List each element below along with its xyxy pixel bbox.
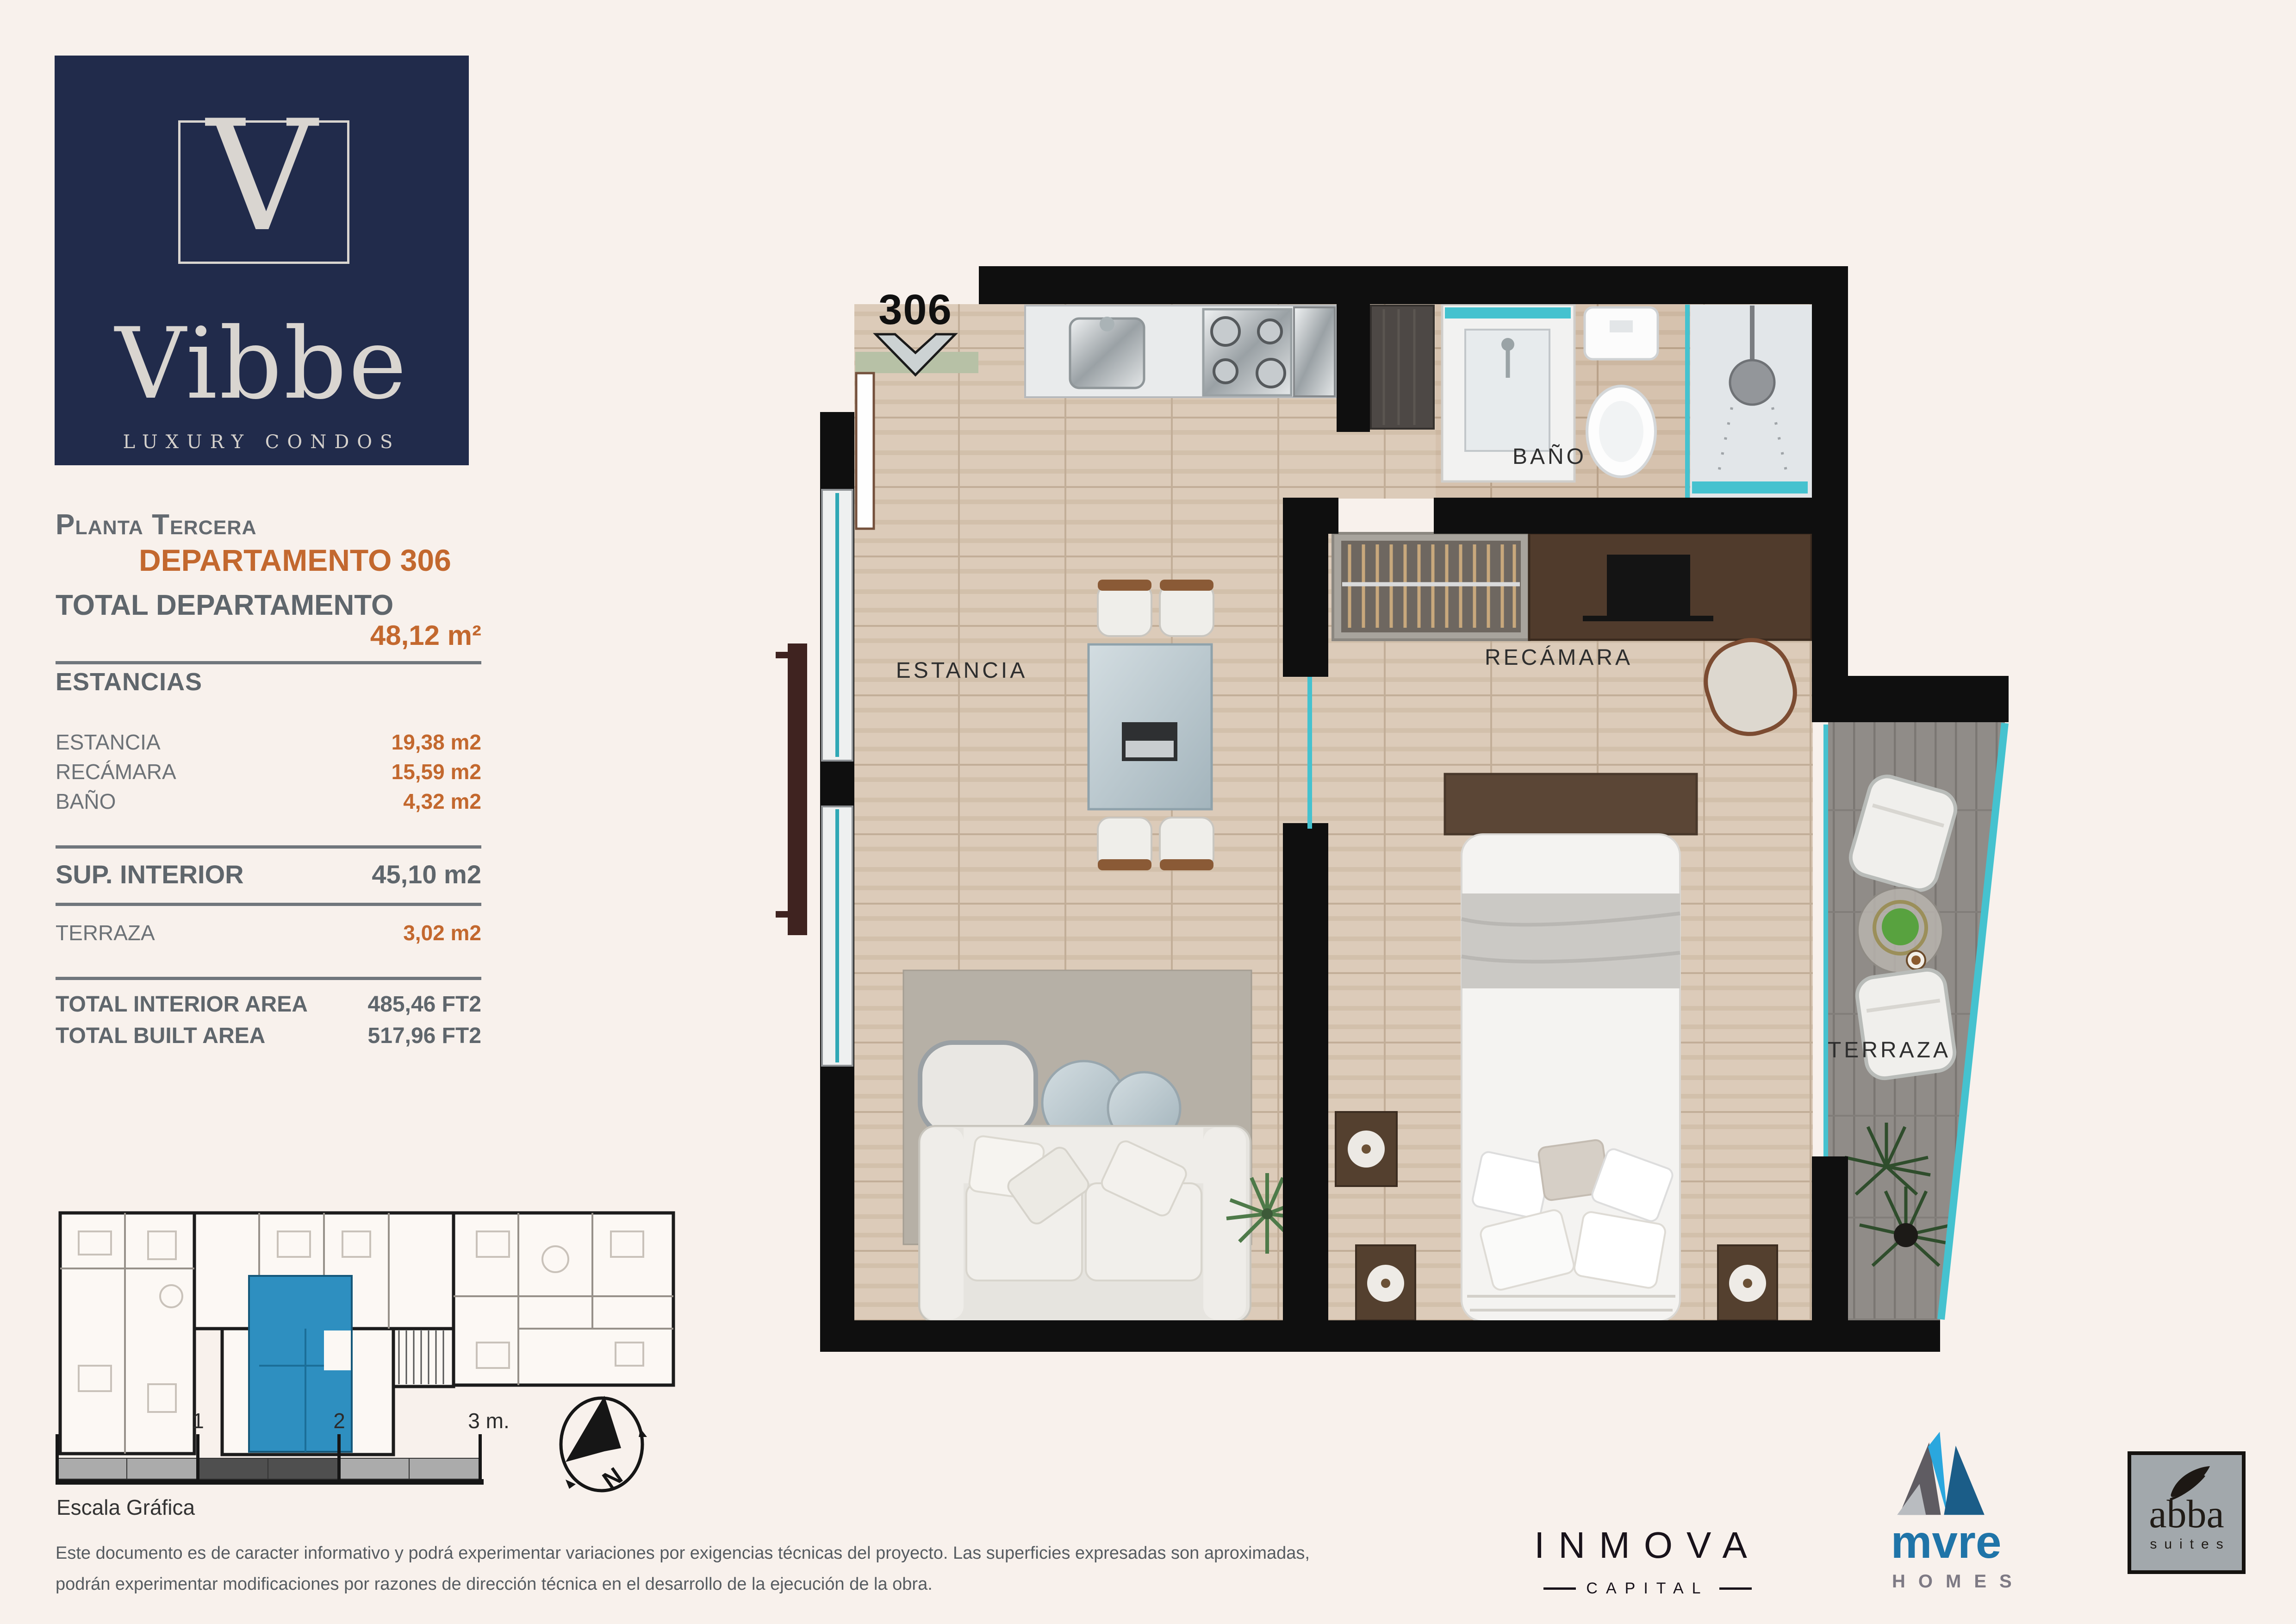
room-label: BAÑO	[56, 789, 116, 814]
floor-title: Planta Tercera	[56, 508, 481, 541]
nightstand	[1718, 1245, 1777, 1320]
dining-area	[1089, 580, 1213, 870]
wall-terraza-stub	[1812, 1156, 1848, 1321]
wall-kitchen-stub	[1337, 266, 1370, 432]
label-estancia: ESTANCIA	[896, 658, 1027, 683]
nightstand	[1356, 1245, 1415, 1320]
tall-cabinet	[1371, 306, 1434, 429]
scale-tick-1: 1	[192, 1409, 204, 1433]
rule-left	[1543, 1587, 1576, 1590]
room-row-estancia: ESTANCIA 19,38 m2	[56, 730, 481, 755]
total-departamento-value: 48,12 m²	[56, 619, 481, 651]
north-compass-icon: N	[561, 1396, 647, 1494]
lounge-chair	[1855, 968, 1957, 1081]
unit-title: DEPARTAMENTO 306	[139, 543, 481, 578]
terraza-table	[1858, 888, 1943, 973]
inmova-name: INMOVA	[1523, 1524, 1773, 1567]
inmova-capital-row: CAPITAL	[1523, 1580, 1773, 1598]
brand-name: Vibbe	[55, 315, 469, 413]
shower-head	[1730, 360, 1774, 405]
brand-logo-block: V Vibbe LUXURY CONDOS	[55, 56, 469, 465]
kitchen-faucet	[1100, 317, 1114, 331]
sup-interior-row: SUP. INTERIOR 45,10 m2	[56, 859, 481, 889]
room-label: RECÁMARA	[56, 759, 176, 784]
exterior-divider	[788, 643, 807, 935]
rule-right	[1719, 1587, 1752, 1590]
blanket-fold	[1462, 893, 1680, 988]
dining-stool	[1160, 818, 1213, 870]
key-plan: 1 2 3 m. Escala Gráfica N	[42, 1194, 699, 1528]
brochure-page: V Vibbe LUXURY CONDOS Planta Tercera DEP…	[0, 0, 2296, 1624]
abba-leaf-icon	[2167, 1465, 2214, 1501]
total-interior-row: TOTAL INTERIOR AREA 485,46 FT2	[56, 992, 481, 1017]
scale-tick-2: 2	[333, 1409, 345, 1433]
inmova-logo: INMOVA CAPITAL	[1523, 1524, 1773, 1598]
divider-line	[56, 977, 481, 980]
total-built-label: TOTAL BUILT AREA	[56, 1023, 265, 1049]
logo-v-monogram: V	[55, 100, 469, 253]
label-terraza: TERRAZA	[1828, 1038, 1951, 1062]
sup-interior-value: 45,10 m2	[372, 859, 481, 889]
bathroom	[1442, 288, 1812, 498]
wall-divider	[1283, 823, 1328, 1321]
total-departamento-label: TOTAL DEPARTAMENTO	[56, 589, 481, 622]
building-outline	[60, 1213, 673, 1455]
room-value: 19,38 m2	[392, 730, 481, 755]
sup-interior-label: SUP. INTERIOR	[56, 859, 244, 889]
headboard	[1445, 774, 1697, 834]
laptop-keyboard	[1126, 741, 1174, 757]
bed	[1445, 774, 1697, 1321]
wall-bottom	[820, 1320, 1940, 1352]
room-label: ESTANCIA	[56, 730, 161, 755]
mvre-name: mvre	[1879, 1521, 2013, 1563]
room-value: 15,59 m2	[392, 759, 481, 784]
inmova-sub: CAPITAL	[1586, 1580, 1709, 1598]
mvre-logo: mvre HOMES	[1879, 1430, 2013, 1592]
disclaimer-line-1: Este documento es de caracter informativ…	[56, 1538, 1527, 1569]
unit-number-label: 306	[878, 286, 952, 333]
wall-divider	[1283, 532, 1328, 677]
bed-pillow	[1573, 1211, 1667, 1289]
sofa	[919, 1126, 1251, 1322]
total-interior-label: TOTAL INTERIOR AREA	[56, 992, 308, 1017]
rooms-header: ESTANCIAS	[56, 668, 481, 696]
disclaimer-line-2: podrán experimentar modificaciones por r…	[56, 1569, 1527, 1600]
label-recamara: RECÁMARA	[1485, 645, 1633, 670]
closet	[1333, 533, 1529, 640]
dining-stool	[1098, 580, 1151, 636]
media-speaker	[1336, 1112, 1397, 1186]
armchair	[920, 1043, 1036, 1135]
dining-stool	[1098, 818, 1151, 870]
room-value: 4,32 m2	[403, 789, 481, 814]
label-bano: BAÑO	[1512, 444, 1587, 469]
total-built-value: 517,96 FT2	[368, 1023, 481, 1049]
divider-line	[56, 661, 481, 664]
brand-tagline: LUXURY CONDOS	[55, 431, 469, 453]
divider-line	[56, 903, 481, 906]
abba-sub: suites	[2131, 1537, 2242, 1552]
floor-plan: 306 ESTANCIA BAÑO RECÁMARA TERRAZA	[764, 208, 2060, 1412]
total-built-row: TOTAL BUILT AREA 517,96 FT2	[56, 1023, 481, 1049]
terraza-label: TERRAZA	[56, 920, 155, 945]
shower	[1687, 305, 1812, 498]
disclaimer: Este documento es de caracter informativ…	[56, 1538, 1527, 1599]
dining-stool	[1160, 580, 1213, 636]
wall-top	[979, 266, 1847, 304]
scale-tick-3: 3 m.	[468, 1409, 509, 1433]
wall-right	[1812, 266, 1848, 722]
wall-bath-bottom	[1283, 498, 1338, 534]
wall-bath-bottom	[1434, 498, 1812, 534]
terraza-value: 3,02 m2	[403, 920, 481, 945]
total-interior-value: 485,46 FT2	[368, 992, 481, 1017]
abba-logo: abba suites	[2128, 1451, 2246, 1574]
shower-door-rail	[1692, 481, 1808, 493]
terraza-row: TERRAZA 3,02 m2	[56, 920, 481, 945]
room-row-bano: BAÑO 4,32 m2	[56, 789, 481, 814]
divider-line	[56, 845, 481, 849]
entry-door-leaf	[856, 373, 874, 529]
mvre-mountains-icon	[1893, 1430, 1999, 1516]
scale-caption: Escala Gráfica	[56, 1495, 195, 1519]
console-tv	[1607, 555, 1690, 618]
room-row-recamara: RECÁMARA 15,59 m2	[56, 759, 481, 784]
fridge	[1294, 307, 1335, 396]
wall-terraza-top	[1812, 676, 2009, 722]
mvre-sub: HOMES	[1879, 1571, 2013, 1592]
bedroom-console	[1529, 533, 1811, 640]
